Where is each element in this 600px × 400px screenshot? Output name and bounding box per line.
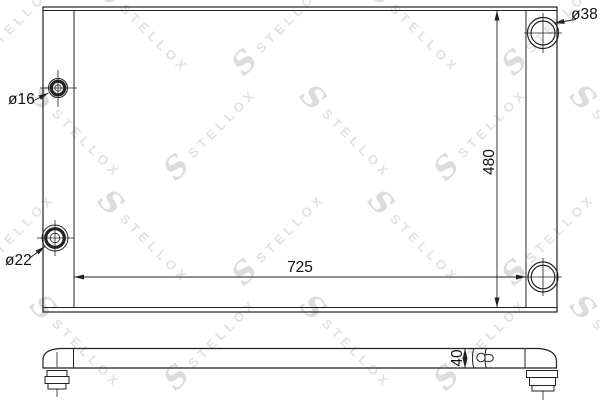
technical-drawing-canvas: SSTELLOXSSTELLOXSSTELLOXSSTELLOXSSTELLOX…: [0, 0, 600, 400]
fitting-step: [532, 386, 554, 392]
radiator-front-view: ø16 ø22 ø38: [5, 6, 598, 312]
dimension-core-height: 480: [481, 11, 498, 308]
dia16-label: ø16: [8, 91, 35, 108]
fitting-top-right: [524, 13, 562, 53]
profile-right-hose-fitting: [527, 371, 558, 400]
thickness-value: 40: [449, 349, 466, 367]
leader-line: [33, 93, 49, 101]
profile-mounting-clip: [473, 349, 494, 369]
dia22-label: ø22: [5, 252, 32, 269]
clip-tab: [485, 355, 493, 362]
fitting-step: [527, 371, 558, 378]
dimension-thickness: 40: [449, 349, 466, 369]
callout-dia22: ø22: [5, 247, 45, 270]
profile-left-hose-fitting: [45, 371, 69, 398]
callout-dia38: ø38: [555, 6, 598, 23]
clip-pin-circle: [477, 353, 485, 361]
fitting-bottom-right: [524, 258, 562, 296]
fitting-top-left: [40, 70, 77, 107]
fitting-step: [47, 371, 67, 377]
radiator-bottom-view: 40: [43, 349, 558, 400]
dimension-core-width: 725: [74, 259, 526, 277]
core-width-value: 725: [287, 259, 313, 276]
fitting-step: [530, 378, 556, 386]
dia38-label: ø38: [571, 6, 598, 23]
core-height-value: 480: [481, 149, 498, 175]
clip-left-edge: [473, 349, 475, 369]
radiator-drawing: ø16 ø22 ø38: [0, 0, 600, 400]
profile-outline: [43, 349, 557, 369]
fitting-step: [48, 384, 66, 390]
fitting-step: [45, 377, 69, 384]
